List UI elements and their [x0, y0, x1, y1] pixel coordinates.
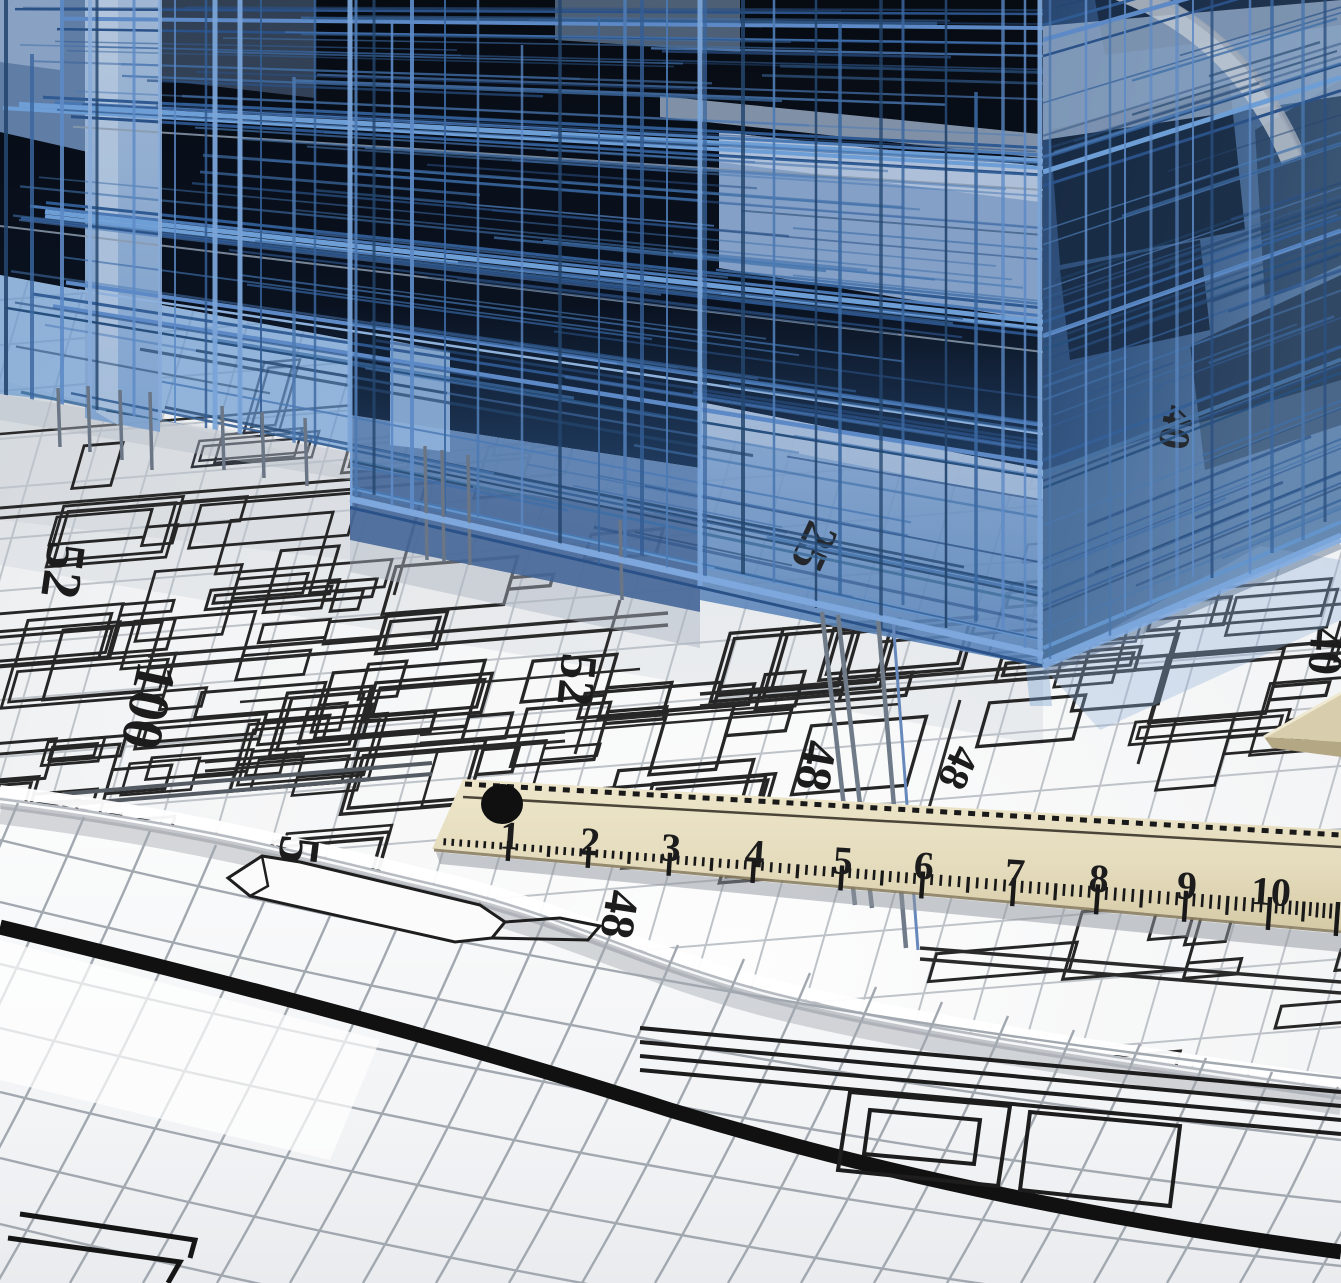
svg-text:6: 6 — [912, 842, 935, 888]
svg-text:1: 1 — [498, 812, 521, 858]
svg-text:9: 9 — [1175, 862, 1198, 908]
svg-text:4: 4 — [743, 830, 766, 876]
svg-text:10: 10 — [1249, 868, 1292, 916]
svg-text:2: 2 — [578, 818, 601, 864]
svg-text:52: 52 — [545, 651, 607, 709]
svg-text:7: 7 — [1003, 849, 1026, 895]
svg-text:5: 5 — [831, 837, 854, 883]
svg-text:48: 48 — [589, 887, 649, 943]
svg-text:3: 3 — [659, 824, 682, 870]
svg-text:52: 52 — [28, 538, 97, 602]
svg-text:8: 8 — [1087, 855, 1110, 901]
